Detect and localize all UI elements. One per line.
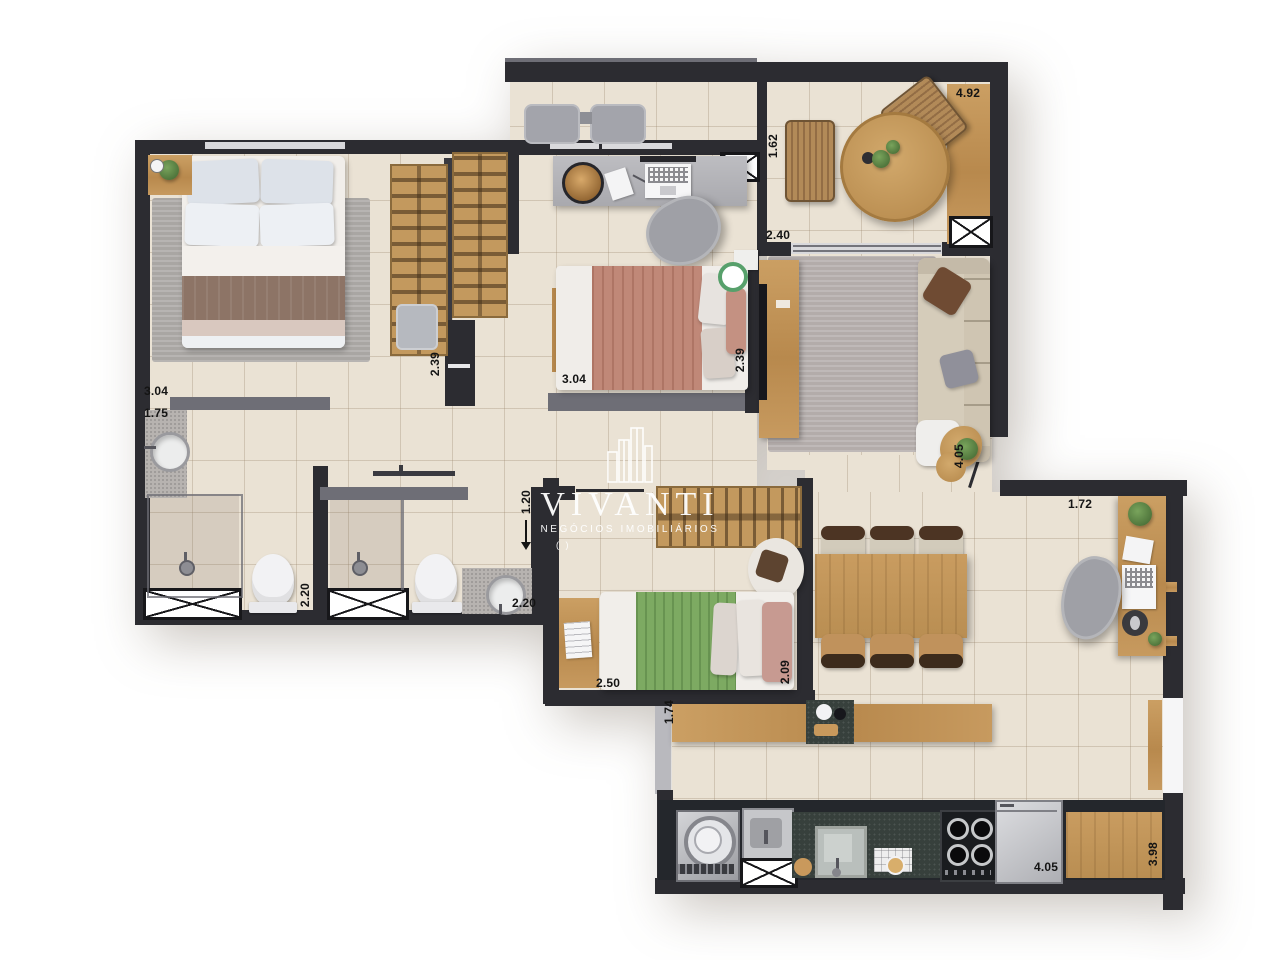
towel-bar-hook xyxy=(399,465,403,473)
dim-label-kitchen-depth: 3.98 xyxy=(1146,842,1160,866)
burner-icon xyxy=(971,844,993,866)
brand-buildings-icon xyxy=(606,426,654,484)
dim-label-desk-width: 1.72 xyxy=(1068,497,1092,511)
wall-bath2-top xyxy=(320,487,468,500)
wall-lower-block-top xyxy=(1000,480,1187,496)
dim-label-balcony-depth: 1.62 xyxy=(766,134,780,158)
dim-label-ensuite-width: 1.75 xyxy=(144,406,168,420)
bath2-faucet xyxy=(499,604,502,614)
burner-icon xyxy=(947,818,969,840)
bath2-shower-glass-line xyxy=(401,500,404,590)
right-desk-plant xyxy=(1128,502,1152,526)
terrace-plant-1 xyxy=(872,150,890,168)
terrace-table xyxy=(840,112,950,222)
laundry-faucet xyxy=(764,830,768,844)
watermark: VIVANTI NEGÓCIOS IMOBILIÁRIOS ( ) xyxy=(500,424,760,564)
bed2-clock xyxy=(718,262,748,292)
master-blanket xyxy=(182,276,345,320)
window-laundry xyxy=(740,858,798,888)
dim-label-bedroom2-width: 3.04 xyxy=(562,372,586,386)
right-desk-mouse xyxy=(1130,616,1140,630)
right-desk-notebook xyxy=(1122,536,1154,564)
island-board xyxy=(814,724,838,736)
washer-drum-inner xyxy=(694,826,722,854)
dining-table xyxy=(815,554,967,638)
sofa-armrest-top xyxy=(918,258,990,274)
fridge-handle xyxy=(1000,804,1014,807)
bed3-pillow-grey xyxy=(710,602,740,675)
master-wardrobe-right xyxy=(452,152,508,318)
bath2-toilet-tank xyxy=(412,602,462,613)
wall-right-outer-top xyxy=(990,62,1008,437)
bed2-pillow-3 xyxy=(726,288,746,354)
window-bath2 xyxy=(327,588,409,620)
master-pillow-1 xyxy=(186,158,260,206)
master-sheet-fold xyxy=(182,336,345,348)
shower-area-bath2 xyxy=(330,500,402,590)
bed2-blanket xyxy=(592,266,702,390)
watermark-brand: VIVANTI xyxy=(500,486,760,524)
stove-knobs xyxy=(945,870,991,875)
dining-chair-bottom-2-back xyxy=(870,654,914,668)
dining-chair-bottom-3-back xyxy=(919,654,963,668)
towel-bar xyxy=(373,471,455,476)
wall-terrace-bottom-left xyxy=(757,242,791,256)
dim-label-terrace-deck: 4.92 xyxy=(956,86,980,100)
balcony-bench-cushion-2 xyxy=(590,104,646,144)
wall-closet-pillar xyxy=(445,320,475,406)
bath1-shower-head xyxy=(179,560,195,576)
tv-screen xyxy=(759,284,767,400)
desk-globe xyxy=(562,162,604,204)
bath1-shower-glass xyxy=(147,494,243,598)
dim-label-hall-depth: 4.05 xyxy=(952,444,966,468)
dim-label-counter-depth: 1.74 xyxy=(662,700,676,724)
dim-label-bedroom3-depth: 2.09 xyxy=(778,660,792,684)
door-leaf-master xyxy=(448,364,470,368)
wall-right-outer-bottom xyxy=(1163,480,1183,910)
window-sill-master xyxy=(205,142,345,149)
kitchen-faucet-base xyxy=(832,868,841,877)
dining-chair-top-2-back xyxy=(870,526,914,540)
dining-chair-top-1-back xyxy=(821,526,865,540)
dim-label-kitchen-width: 4.05 xyxy=(1034,860,1058,874)
desk-laptop-screen xyxy=(640,156,696,162)
bath1-toilet-tank xyxy=(249,602,297,613)
master-pillow-2 xyxy=(260,159,333,205)
bath2-shower-head xyxy=(352,560,368,576)
wall-bedroom2-bottom xyxy=(548,393,748,411)
wardrobe-bench-cushion xyxy=(396,304,438,350)
door-hinge-right-1 xyxy=(1165,582,1177,592)
sliding-door-sill xyxy=(791,243,943,254)
laptop-keyboard xyxy=(648,167,688,183)
wall-corridor xyxy=(170,397,330,410)
counter-plate xyxy=(886,856,905,875)
dim-label-terrace-width: 2.40 xyxy=(766,228,790,242)
dining-chair-bottom-1-back xyxy=(821,654,865,668)
tv-decor xyxy=(776,300,790,308)
nightstand-clock xyxy=(150,159,164,173)
fridge-door-line xyxy=(997,810,1057,812)
washer-controls xyxy=(678,864,734,874)
stove xyxy=(940,810,998,882)
right-laptop-keyboard xyxy=(1125,568,1153,588)
balcony-bench-cushion-1 xyxy=(524,104,580,144)
dim-label-bedroom3-width: 2.50 xyxy=(596,676,620,690)
bath1-faucet xyxy=(144,446,156,449)
master-sheet xyxy=(182,246,345,280)
bath2-toilet xyxy=(415,554,457,608)
dim-label-bedroom2-depth: 2.39 xyxy=(733,348,747,372)
counter-round-board xyxy=(794,858,812,876)
apartment-floor-plan: 4.92 1.62 2.40 3.04 1.75 2.39 3.04 2.39 … xyxy=(0,0,1280,960)
watermark-tagline: NEGÓCIOS IMOBILIÁRIOS xyxy=(500,524,760,535)
entry-door-open xyxy=(1163,698,1183,793)
master-pillow-4 xyxy=(259,203,334,248)
floor-plan-page: 4.92 1.62 2.40 3.04 1.75 2.39 3.04 2.39 … xyxy=(0,0,1280,960)
door-hinge-right-2 xyxy=(1165,636,1177,646)
bath1-toilet xyxy=(252,554,294,606)
bath1-basin xyxy=(150,432,190,472)
dining-chair-top-3-back xyxy=(919,526,963,540)
dim-label-bath1-depth: 2.20 xyxy=(298,583,312,607)
island-plate xyxy=(816,704,832,720)
laptop-touchpad xyxy=(660,186,676,195)
bedroom3-desk-paper xyxy=(564,621,592,659)
right-desk-plant-small xyxy=(1148,632,1162,646)
terrace-chair-left xyxy=(785,120,835,202)
watermark-mark: ( ) xyxy=(556,540,571,550)
burner-icon xyxy=(971,818,993,840)
master-pillow-3 xyxy=(184,203,259,248)
balcony-bench-link xyxy=(580,112,592,124)
terrace-plant-2 xyxy=(886,140,900,154)
dim-label-closet-depth: 2.39 xyxy=(428,352,442,376)
window-deck xyxy=(949,216,993,248)
dim-label-master-width: 3.04 xyxy=(144,384,168,398)
dim-label-bath2-width: 2.20 xyxy=(512,596,536,610)
burner-icon xyxy=(947,844,969,866)
island-pot xyxy=(834,708,846,720)
entry-door-leaf xyxy=(1148,700,1162,790)
